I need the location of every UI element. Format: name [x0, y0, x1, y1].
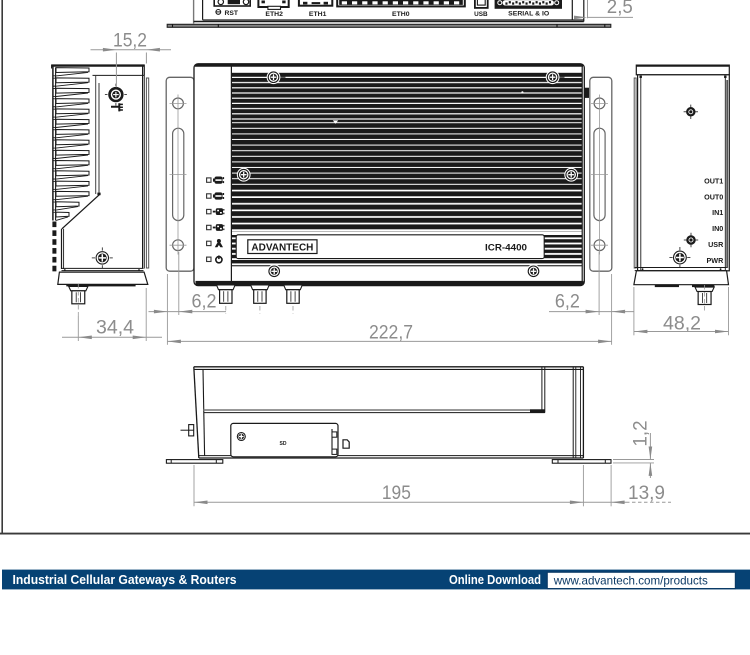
svg-text:SERIAL & IO: SERIAL & IO: [508, 10, 549, 17]
svg-text:222,7: 222,7: [369, 323, 413, 344]
svg-text:6,2: 6,2: [192, 291, 217, 312]
svg-text:IN0: IN0: [712, 224, 723, 233]
svg-text:SD: SD: [280, 441, 287, 447]
svg-text:1,2: 1,2: [631, 421, 652, 447]
svg-text:OUT0: OUT0: [704, 192, 723, 201]
svg-text:15,2: 15,2: [113, 30, 147, 51]
svg-text:2,5: 2,5: [607, 0, 633, 18]
svg-text:RST: RST: [225, 10, 239, 17]
svg-text:OUT1: OUT1: [704, 176, 723, 185]
svg-text:USB: USB: [474, 11, 488, 18]
svg-text:USR: USR: [708, 240, 724, 249]
svg-text:ICR-4400: ICR-4400: [485, 242, 527, 253]
svg-text:IN1: IN1: [712, 208, 723, 217]
svg-text:34,4: 34,4: [96, 317, 134, 338]
svg-text:Industrial Cellular Gateways &: Industrial Cellular Gateways & Routers: [13, 573, 237, 587]
svg-text:Online Download: Online Download: [449, 573, 541, 587]
svg-text:PWR: PWR: [707, 256, 725, 265]
svg-text:195: 195: [382, 483, 411, 504]
svg-text:ETH1: ETH1: [309, 11, 327, 18]
svg-text:13,9: 13,9: [628, 483, 665, 504]
svg-text:ADVANTECH: ADVANTECH: [251, 242, 313, 253]
svg-text:ETH0: ETH0: [392, 11, 410, 18]
svg-text:6,2: 6,2: [555, 291, 580, 312]
svg-text:www.advantech.com/products: www.advantech.com/products: [553, 573, 708, 587]
svg-text:ETH2: ETH2: [265, 11, 283, 18]
